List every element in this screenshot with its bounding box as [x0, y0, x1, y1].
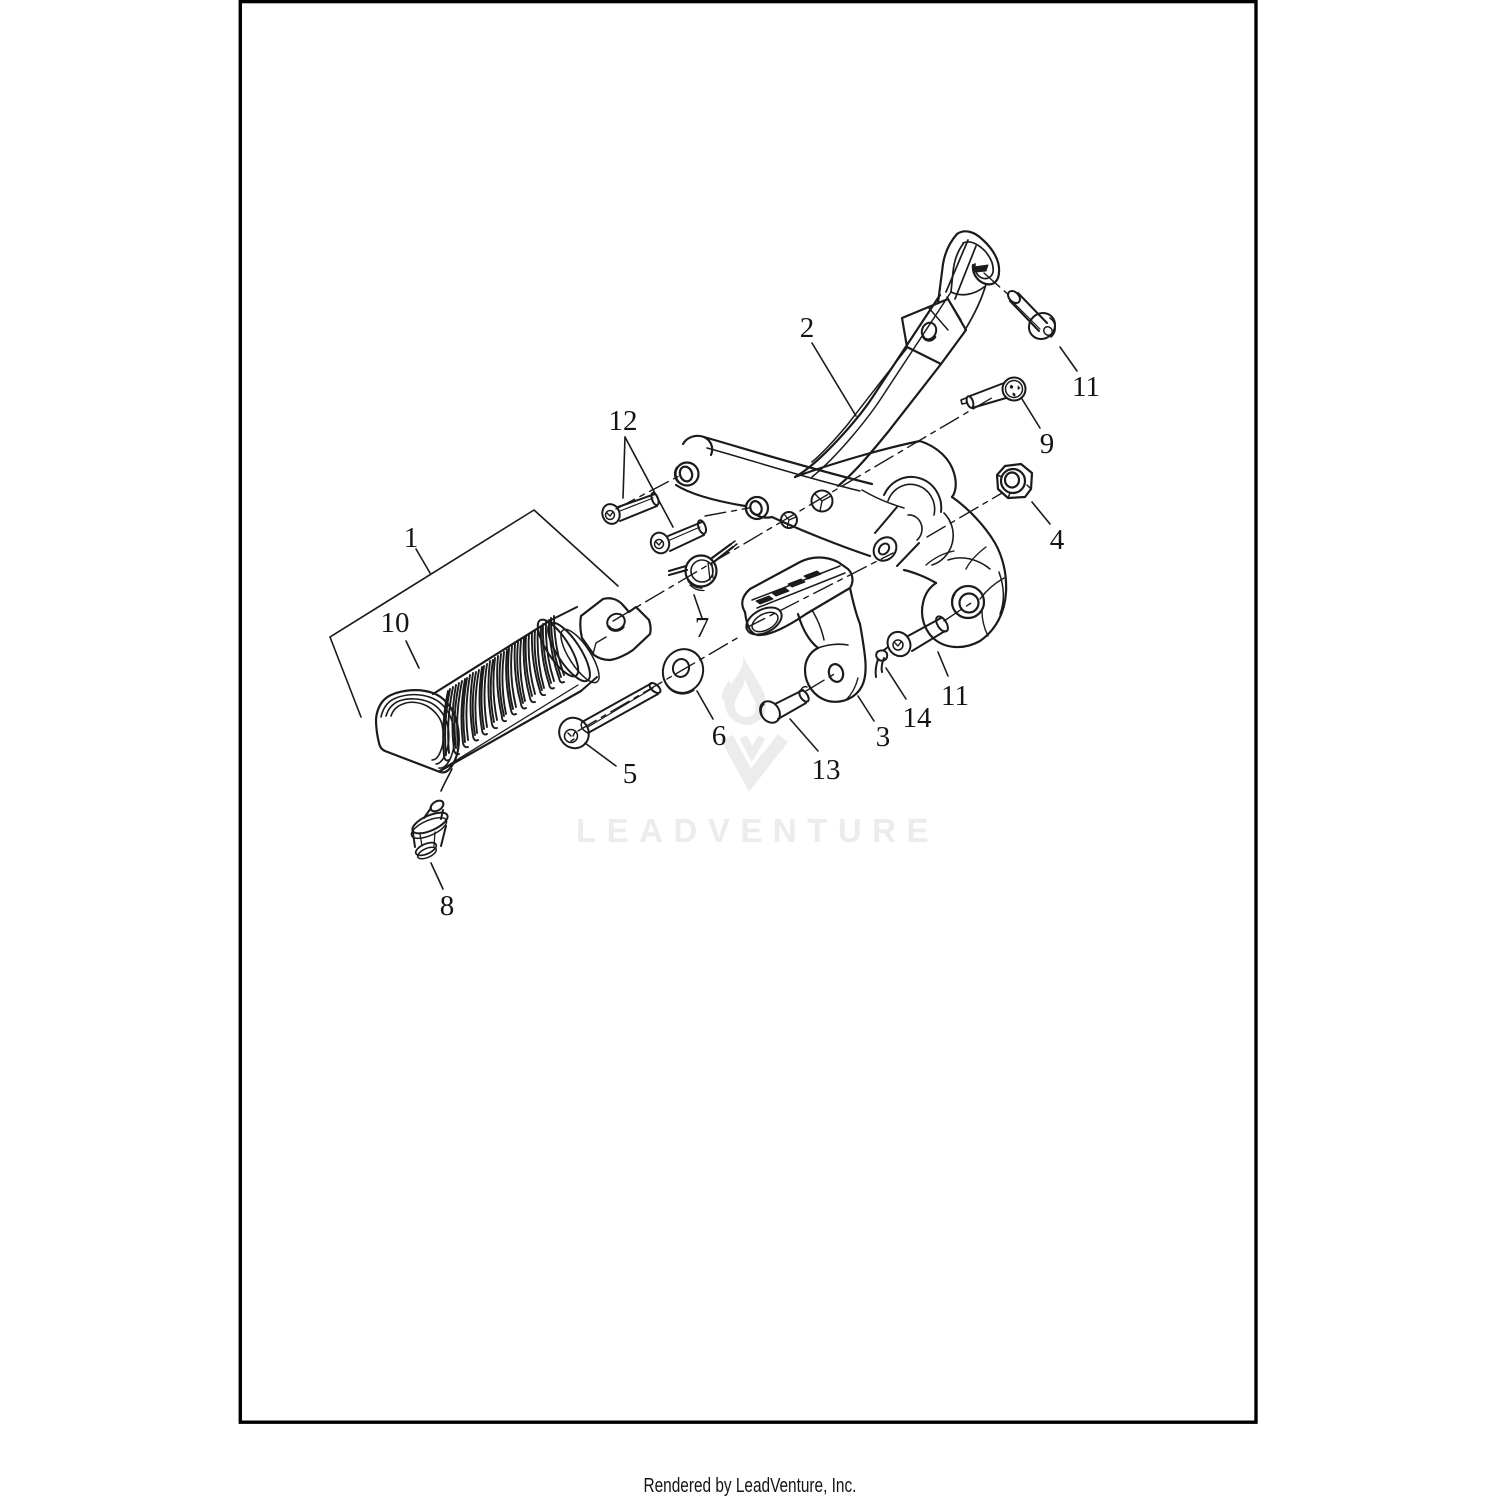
svg-text:2: 2: [800, 312, 815, 344]
svg-text:10: 10: [381, 607, 410, 639]
svg-text:5: 5: [623, 758, 638, 790]
svg-text:13: 13: [812, 754, 841, 786]
svg-text:11: 11: [1072, 371, 1100, 403]
svg-text:11: 11: [941, 680, 969, 712]
svg-text:7: 7: [695, 612, 710, 644]
svg-text:LEADVENTURE: LEADVENTURE: [576, 812, 939, 849]
svg-text:1: 1: [404, 522, 419, 554]
svg-text:12: 12: [609, 405, 638, 437]
svg-text:8: 8: [440, 890, 455, 922]
svg-text:4: 4: [1050, 524, 1065, 556]
svg-text:9: 9: [1040, 428, 1055, 460]
svg-text:6: 6: [712, 720, 727, 752]
svg-text:14: 14: [903, 702, 933, 734]
svg-text:Rendered by LeadVenture, Inc.: Rendered by LeadVenture, Inc.: [644, 1474, 857, 1496]
svg-text:3: 3: [876, 721, 891, 753]
